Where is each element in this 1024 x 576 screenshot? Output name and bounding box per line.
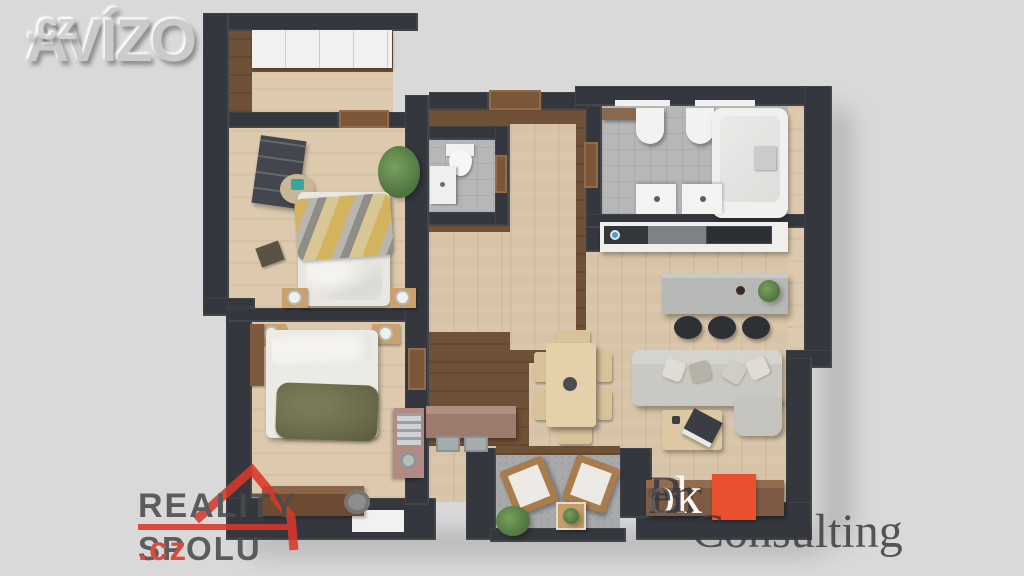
bedroom2-lamp-right	[378, 326, 393, 341]
wall-bedroom-divider	[229, 308, 417, 322]
wall-closet-top	[203, 13, 418, 31]
wc-door	[495, 155, 507, 193]
right-loggia-floor	[788, 106, 804, 350]
entry-sideboard	[426, 406, 516, 438]
wall-hall-top-left	[429, 92, 489, 110]
bathroom-door	[584, 142, 598, 188]
dining-chair-right-1	[596, 352, 612, 382]
bedroom1-plant	[378, 146, 420, 198]
entry-sideboard-tray-1	[436, 436, 460, 452]
bc-registered-mark: ®	[648, 468, 660, 522]
reality-spolu-line1: REALITY	[138, 487, 297, 526]
wall-left-upper	[203, 13, 229, 313]
wc-sink-drain	[440, 182, 445, 187]
dining-chair-bottom	[558, 426, 592, 444]
hallway-floor	[510, 124, 576, 350]
entrance-door	[489, 90, 541, 110]
wall-balcony-left	[466, 448, 496, 540]
bedroom2-wardrobe-strip	[250, 324, 264, 386]
balcony-plant	[496, 506, 530, 536]
kitchen-cooktop	[706, 226, 772, 244]
bedroom1-lamp-left	[287, 290, 302, 305]
closet-floor	[252, 72, 393, 112]
vanity-faucet-left	[654, 196, 660, 202]
island-plant	[758, 280, 780, 302]
bedroom2-desk-shelves	[397, 413, 421, 445]
bedroom2-blanket-olive	[275, 382, 379, 442]
kitchen-sink-dot	[610, 230, 620, 240]
floor-plan-image: AVÍZO.cz REALITY SPOLU.cz Broker® Consul…	[0, 0, 1024, 576]
wall-closet-divider-left	[229, 112, 339, 128]
bar-stool-2	[708, 316, 736, 339]
closet-door	[339, 110, 389, 128]
bathroom-toilet	[636, 108, 664, 144]
top-wall-window-1	[615, 100, 670, 106]
bedroom2-door	[408, 348, 426, 390]
vanity-faucet-right	[700, 196, 706, 202]
bedroom1-pouf-book	[291, 179, 304, 190]
bar-stool-1	[674, 316, 702, 339]
avizo-tld: .cz	[26, 6, 77, 49]
dining-chair-right-2	[596, 390, 612, 420]
bathroom-bidet	[686, 108, 714, 144]
closet-wardrobe	[252, 30, 392, 68]
bedroom1-blanket-yellow	[294, 193, 394, 262]
top-wall-window-2	[695, 100, 755, 106]
hallway-floor-lower	[429, 232, 510, 332]
balcony-threshold	[496, 446, 620, 455]
bathtub-faucet	[754, 146, 776, 170]
bedroom1-lamp-right	[395, 290, 410, 305]
reality-spolu-tld: .cz	[138, 530, 188, 568]
island-bowl	[736, 286, 745, 295]
bedroom2-desk-stool	[400, 452, 417, 469]
entry-sideboard-tray-2	[464, 436, 488, 452]
wall-right-upper	[804, 86, 832, 358]
balcony-table-plant	[563, 508, 579, 524]
coffee-table-remote	[672, 416, 680, 424]
kitchen-worktop	[648, 226, 706, 244]
sofa-chaise	[734, 398, 782, 436]
bar-stool-3	[742, 316, 770, 339]
broker-consulting-line2: Consulting	[692, 508, 903, 556]
dining-table-centerpiece	[563, 377, 577, 391]
bedroom2-pillows	[272, 332, 373, 365]
bedroom2-chair	[344, 490, 370, 514]
